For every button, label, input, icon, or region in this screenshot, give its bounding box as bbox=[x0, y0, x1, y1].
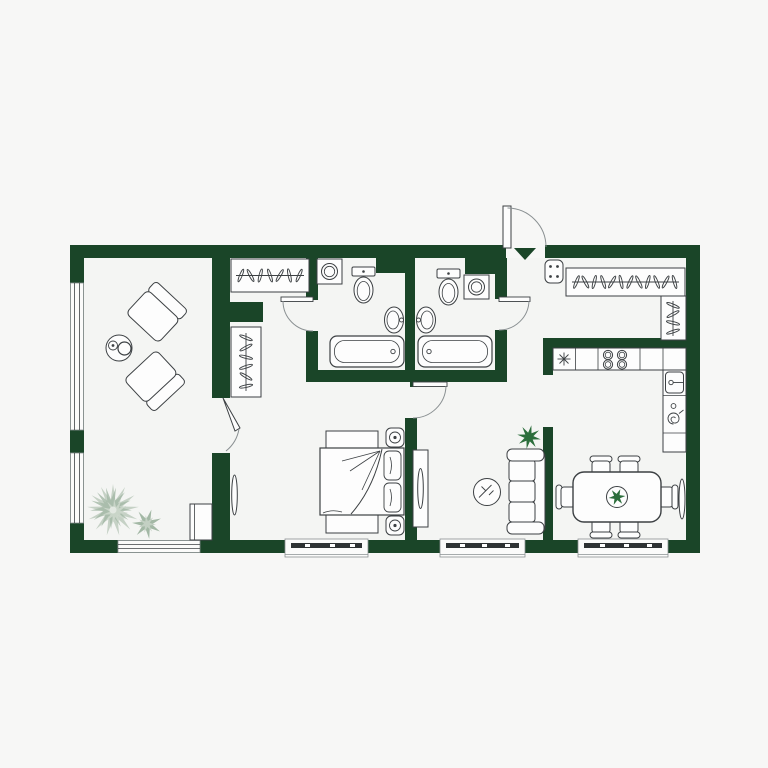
bath1-door-leaf bbox=[281, 297, 313, 302]
sink-faucet bbox=[400, 318, 404, 322]
bedroom-door-leaf bbox=[413, 382, 447, 387]
window-glass bbox=[118, 541, 200, 553]
window-glass bbox=[71, 453, 84, 523]
window-tick bbox=[482, 544, 487, 547]
washing-machine bbox=[464, 275, 489, 299]
sink-faucet bbox=[417, 318, 421, 322]
window-glass bbox=[71, 283, 84, 430]
toilet bbox=[437, 269, 460, 305]
window-tick bbox=[505, 544, 510, 547]
side-table bbox=[106, 335, 132, 361]
bath1-shaft bbox=[376, 258, 405, 273]
toilet-button bbox=[362, 270, 365, 273]
intercom-dot bbox=[549, 265, 552, 268]
lamp-dot bbox=[393, 524, 396, 527]
living-window bbox=[440, 539, 525, 557]
balcony-window-left-2 bbox=[71, 453, 84, 523]
sofa-seat bbox=[509, 481, 535, 502]
pillow bbox=[384, 451, 401, 480]
corridor-wardrobe-top bbox=[231, 259, 309, 292]
plant-center bbox=[527, 435, 531, 439]
bath-divider-wall bbox=[405, 258, 415, 382]
closet-body bbox=[661, 296, 686, 340]
top-wall-right bbox=[545, 245, 700, 258]
sofa-seat bbox=[509, 460, 535, 481]
cabinet-body bbox=[190, 504, 212, 540]
intercom-panel bbox=[545, 260, 563, 283]
kitchen-sink bbox=[666, 372, 685, 393]
tv bbox=[418, 469, 424, 509]
intercom-dot bbox=[549, 275, 552, 278]
sink bbox=[385, 307, 404, 333]
sofa-back bbox=[534, 452, 545, 532]
dining-chair-left bbox=[556, 485, 575, 509]
dining-radiator bbox=[679, 479, 685, 519]
bath2-door-leaf bbox=[499, 297, 530, 302]
balcony-divider-lower bbox=[212, 453, 230, 540]
corridor-closet bbox=[231, 327, 261, 397]
window-tick bbox=[305, 544, 310, 547]
window-tick bbox=[330, 544, 335, 547]
corridor-stub-wall bbox=[227, 302, 263, 322]
balcony-divider-upper bbox=[212, 258, 230, 398]
chair-back bbox=[590, 532, 612, 538]
floor-plan-stage bbox=[0, 0, 768, 768]
sink-faucet-dot bbox=[669, 380, 673, 384]
entry-wardrobe bbox=[566, 268, 685, 296]
washing-machine bbox=[317, 259, 342, 284]
intercom-dot bbox=[556, 275, 559, 278]
balcony-bottom-glazing bbox=[118, 541, 200, 553]
right-wall bbox=[686, 245, 700, 553]
bathtub bbox=[330, 336, 404, 367]
plant-center bbox=[110, 507, 117, 514]
balcony-cabinet bbox=[190, 504, 212, 540]
dining-chair-right bbox=[659, 485, 678, 509]
bed-frame-bottom bbox=[326, 515, 378, 533]
sofa-seat bbox=[509, 502, 535, 522]
bowl bbox=[118, 342, 131, 355]
lamp-dot bbox=[393, 436, 396, 439]
table-centerpiece bbox=[607, 487, 628, 508]
window-tick bbox=[624, 544, 629, 547]
entry-side-closet bbox=[661, 296, 686, 340]
pillow bbox=[384, 483, 401, 512]
table-top bbox=[474, 479, 501, 506]
floor-plan bbox=[0, 0, 768, 768]
entry-door-leaf bbox=[503, 206, 511, 248]
bath2-east-wall-upper bbox=[495, 258, 507, 299]
baths-south-wall bbox=[306, 370, 507, 382]
nightstand-top bbox=[386, 428, 404, 447]
window-tick bbox=[600, 544, 605, 547]
top-wall-left bbox=[70, 245, 506, 258]
bed-frame-top bbox=[326, 431, 378, 449]
chair-back bbox=[618, 532, 640, 538]
washer-body bbox=[317, 259, 342, 284]
toilet-button bbox=[447, 272, 450, 275]
window-tick bbox=[647, 544, 652, 547]
sofa-armrest bbox=[507, 522, 544, 534]
cup-dot bbox=[112, 344, 115, 347]
bathtub bbox=[418, 336, 492, 367]
bedroom bbox=[320, 428, 404, 535]
sink bbox=[417, 307, 436, 333]
sofa bbox=[507, 449, 545, 534]
chair-back bbox=[672, 485, 678, 509]
window-tick bbox=[460, 544, 465, 547]
nightstand-bottom bbox=[386, 516, 404, 535]
bath2-shaft bbox=[465, 258, 495, 274]
sofa-armrest bbox=[507, 449, 544, 461]
balcony-window-left-1 bbox=[71, 283, 84, 430]
bedroom-window bbox=[285, 539, 368, 557]
bedroom-radiator bbox=[232, 475, 238, 515]
window-tick bbox=[350, 544, 355, 547]
toilet bbox=[352, 267, 375, 303]
round-coffee-table bbox=[474, 479, 501, 506]
intercom-dot bbox=[556, 265, 559, 268]
kitchen-west-wall-upper bbox=[543, 348, 553, 375]
dining-window bbox=[578, 539, 668, 557]
